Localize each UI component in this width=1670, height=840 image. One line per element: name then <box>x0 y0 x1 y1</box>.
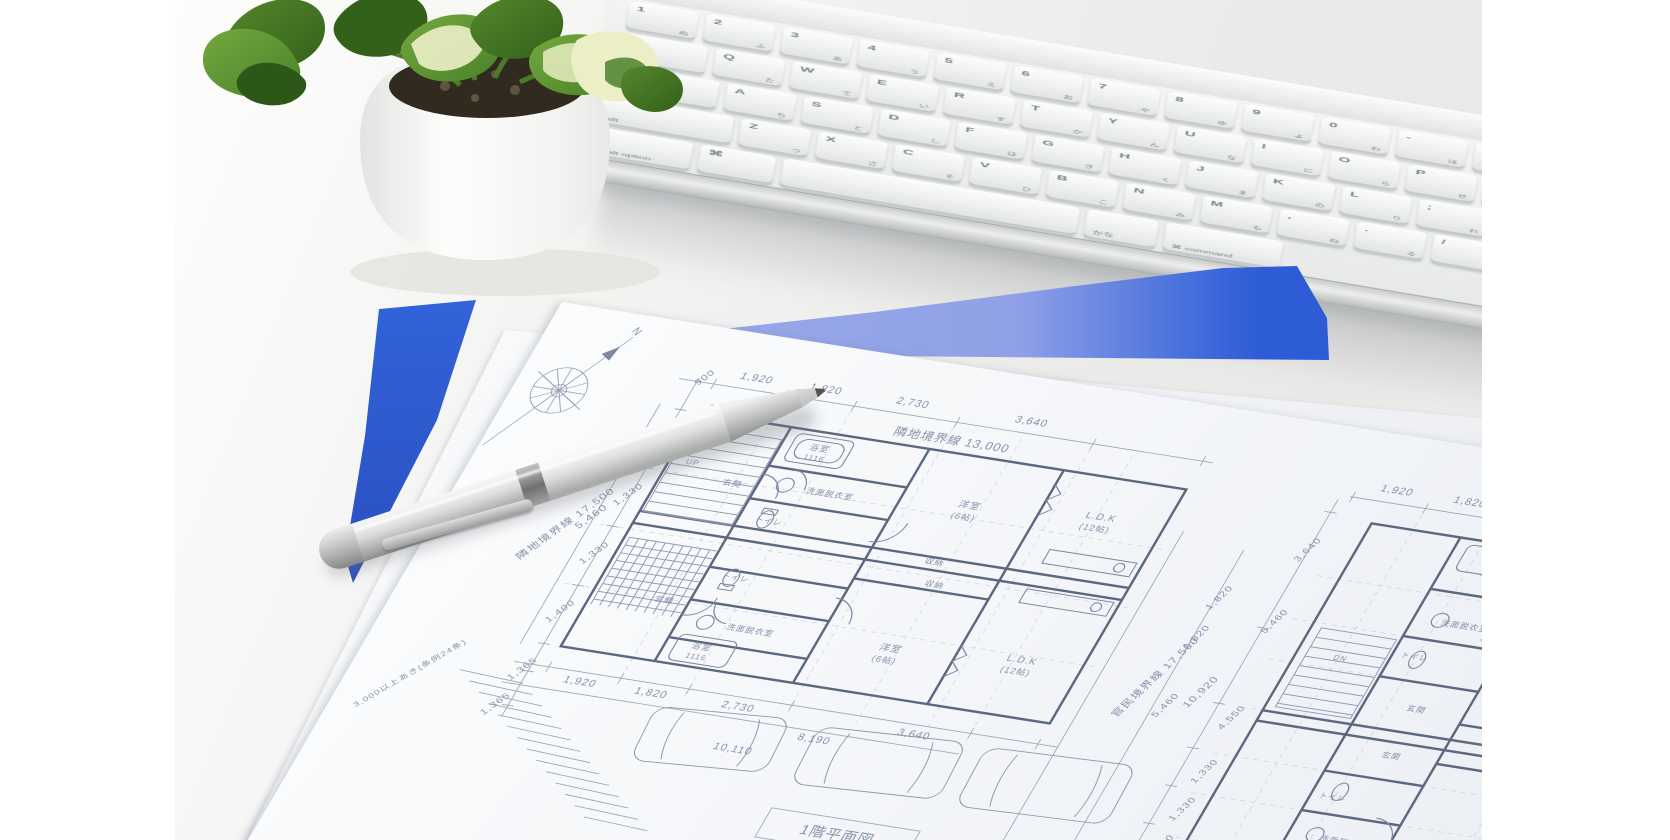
plan-label-entry: 玄関 <box>1404 703 1428 715</box>
plan-label-0: 1,920 <box>738 371 776 386</box>
plan-label-3: 1,330 <box>577 540 612 566</box>
plan-label-1: 1,820 <box>1181 624 1214 651</box>
plan-label-dn: DN <box>1331 653 1349 663</box>
plan-label-wash: 洗面脱衣室 <box>724 622 776 638</box>
plan-label-west_room: 洋室 <box>877 641 905 656</box>
plan-label-0: 1,920 <box>561 674 599 689</box>
plan-label-wash: 洗面脱衣室 <box>1439 618 1482 634</box>
plan-label-bath_size: 1116 <box>1478 569 1482 580</box>
plan-label-9: 1,400 <box>1145 833 1178 840</box>
plan-label-8: 1,330 <box>1167 795 1200 822</box>
plan-label-entry: 玄関 <box>1379 750 1403 762</box>
potted-plant <box>175 0 735 300</box>
right-plan-stairs <box>1275 628 1396 719</box>
plan-label-entry: 玄関 <box>653 594 677 606</box>
plan-label-3: 3,640 <box>1292 536 1325 563</box>
plan-label-wash: 洗面脱衣室 <box>804 486 856 502</box>
plan-label-7: 1,365 <box>478 691 513 717</box>
plan-label-bath: 浴室 <box>689 640 714 653</box>
plan-label-bath: 浴室 <box>807 442 832 455</box>
plan-label-4: 1,400 <box>543 598 578 624</box>
plan-label-5: 10,920 <box>1180 675 1221 710</box>
plan-label-3: 8,190 <box>795 732 833 747</box>
parked-cars <box>625 691 1139 834</box>
plan-label-1: 1,820 <box>632 686 670 701</box>
plan-label-bath_size: 1116 <box>802 453 827 464</box>
plan-label-wash: 洗面脱衣室 <box>1317 834 1369 840</box>
plan-label-7: 1,330 <box>1189 758 1222 785</box>
plan-label-compass: N <box>628 325 645 338</box>
plan-label-3: 3,640 <box>1012 414 1050 429</box>
plan-label-setback_note: 3,000以上あき(条例24条) <box>351 637 468 708</box>
plan-label-1: 1,820 <box>1451 495 1482 510</box>
plan-label-0: 900 <box>693 368 718 387</box>
plan-label-closet: 収納 <box>923 556 947 568</box>
plan-label-6: 4,550 <box>1216 704 1249 731</box>
plan-label-entry: 玄関 <box>721 478 745 490</box>
photo-area: 1ぬ2ふ3あ4う5え6お7や8ゆ9よ0わ-ほ^へ¥ーtabQたWてEいRすTかY… <box>175 0 1482 840</box>
road-hatch <box>390 670 718 831</box>
plan-label-boundary_top: 隣地境界線 13,000 <box>891 424 1013 455</box>
right-plan-fixtures <box>1269 544 1482 840</box>
desk-photo: 1ぬ2ふ3あ4う5え6お7や8ゆ9よ0わ-ほ^へ¥ーtabQたWてEいRすTかY… <box>0 0 1670 840</box>
plan-label-title: 1階平面図 <box>796 822 877 840</box>
plan-label-bath_size: 1116 <box>684 651 709 662</box>
plan-label-2: 2,730 <box>894 396 932 411</box>
plan-label-2: 5,460 <box>1149 692 1182 719</box>
plan-label-0: 1,920 <box>1378 483 1416 498</box>
plan-label-6: 1,365 <box>505 656 540 682</box>
plan-label-0: 1,820 <box>1204 584 1237 611</box>
plan-label-5: 3,640 <box>895 727 933 742</box>
plan-label-toilet: トイレ <box>1317 792 1348 804</box>
plan-label-4: 5,460 <box>1259 608 1292 635</box>
plan-label-4: 10,110 <box>711 741 755 757</box>
